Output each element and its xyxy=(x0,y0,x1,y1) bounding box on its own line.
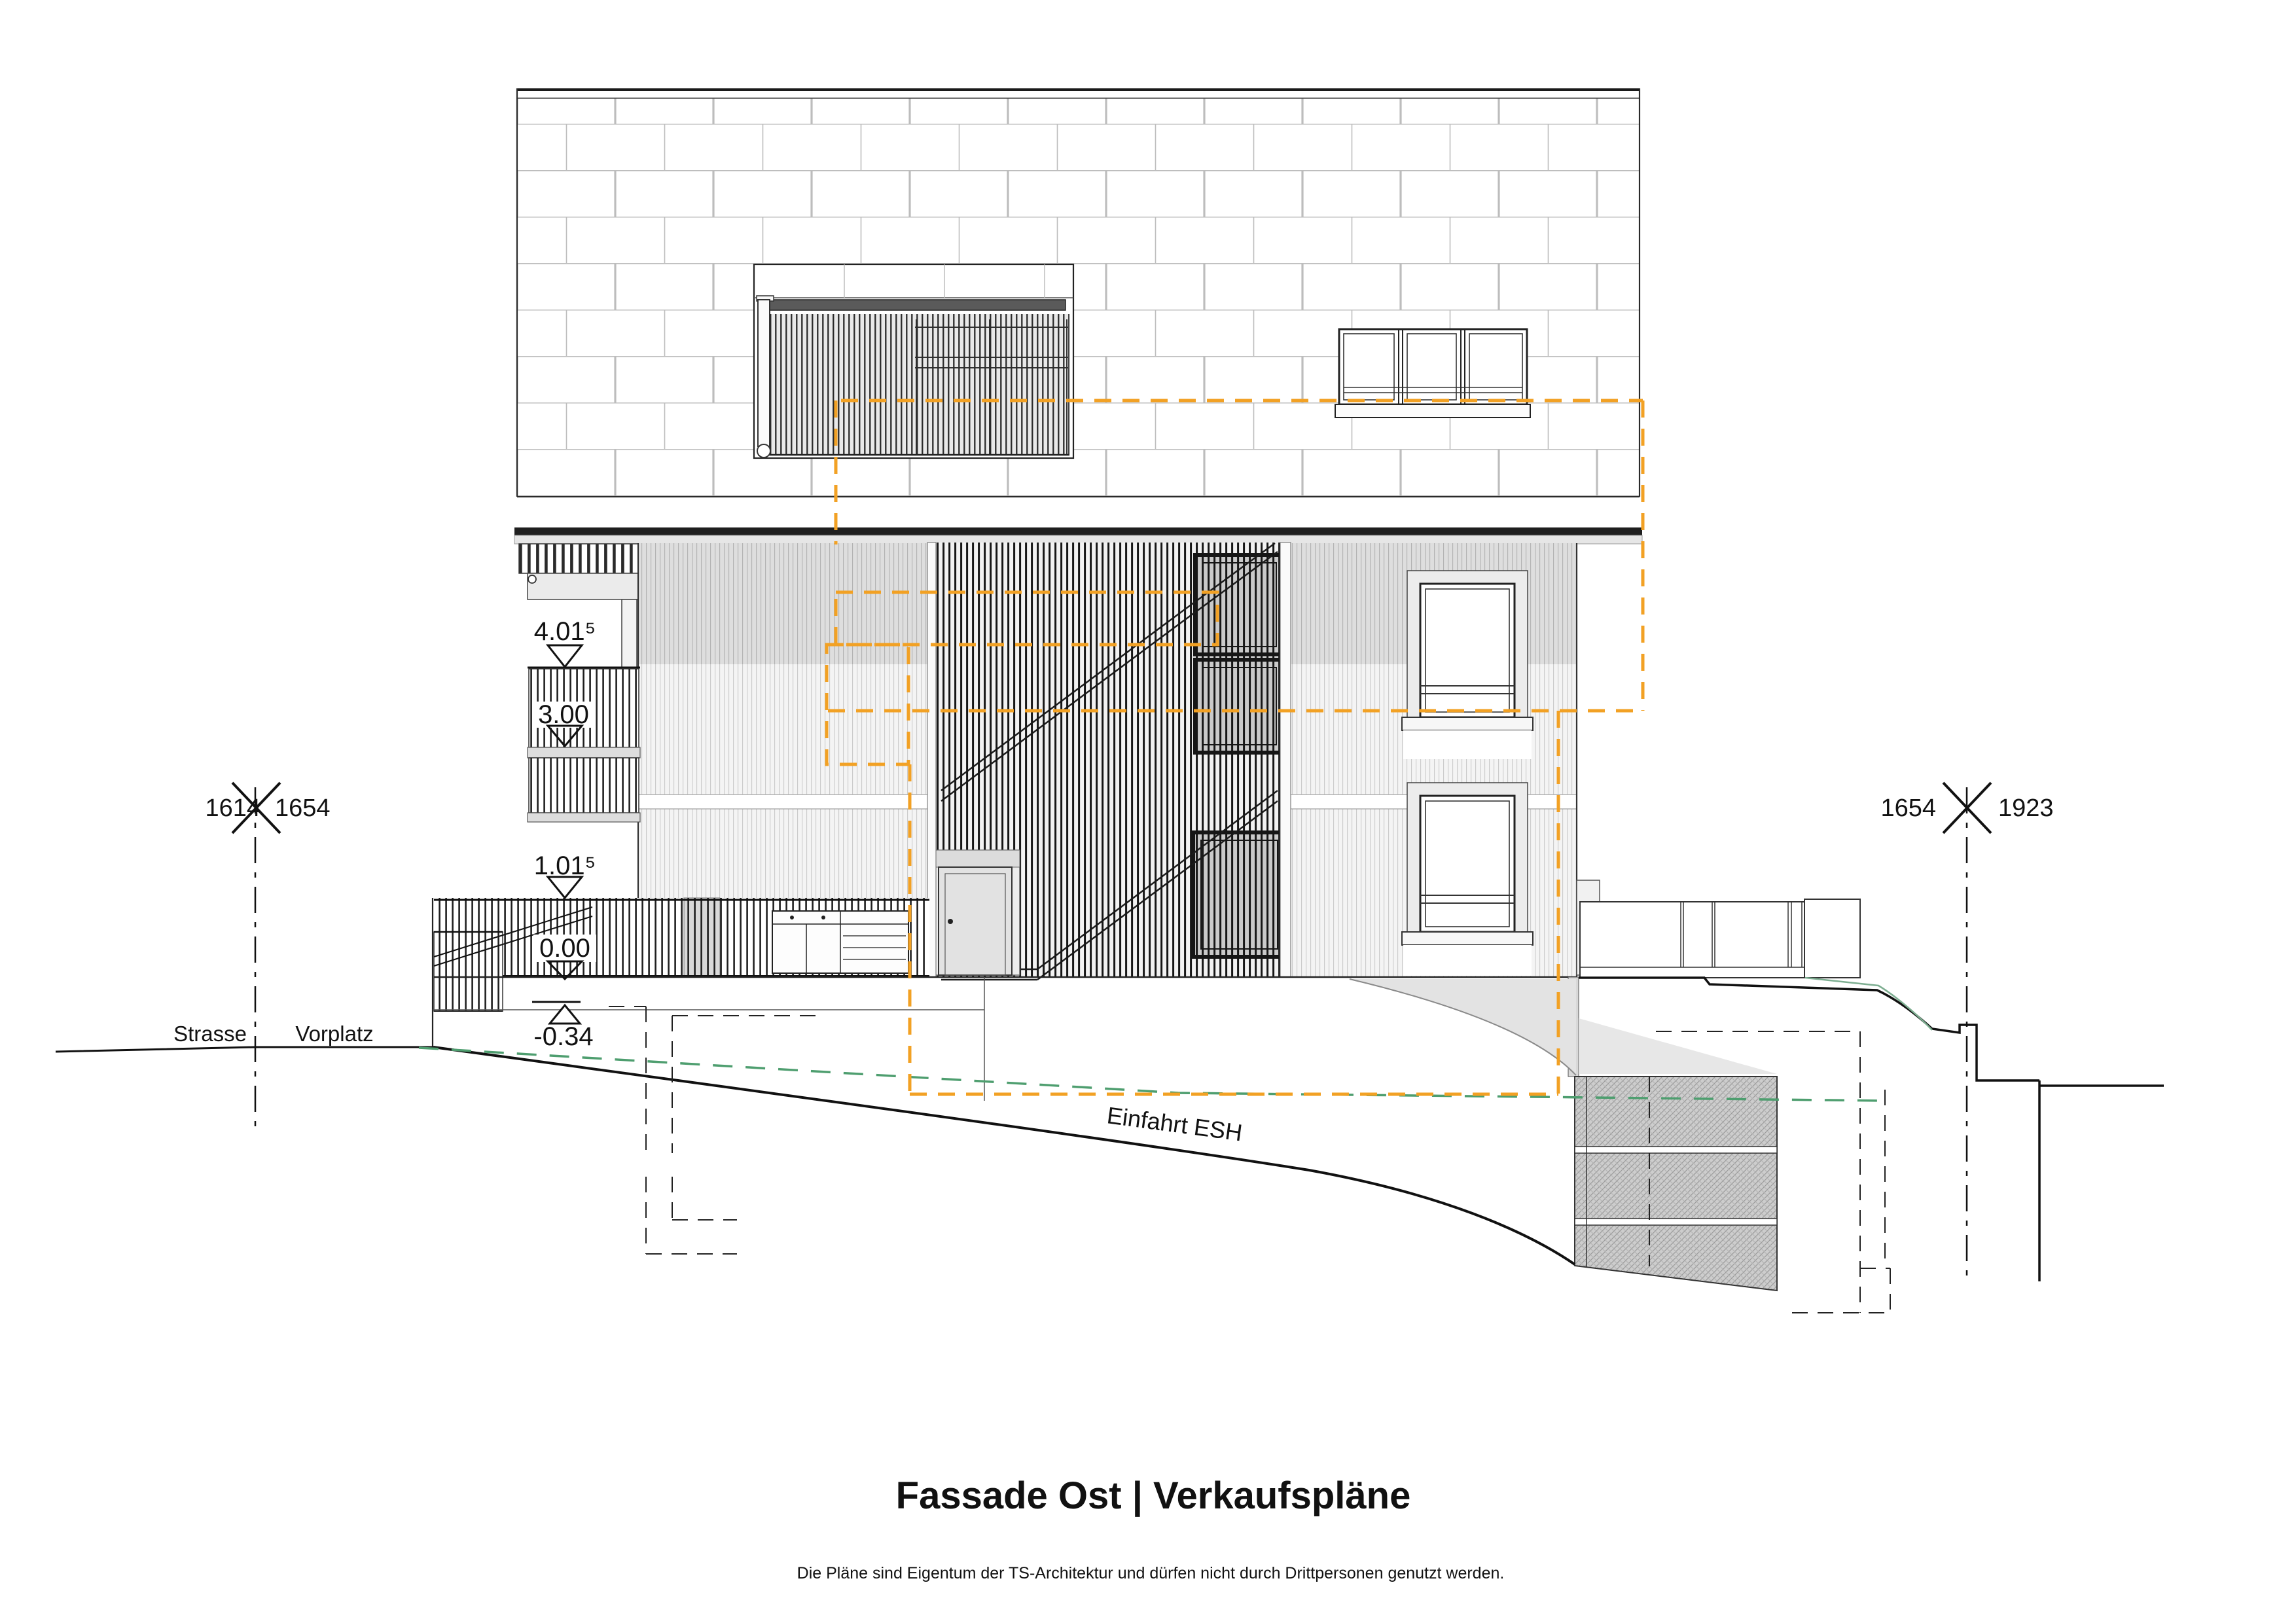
attic-window-sill xyxy=(1335,404,1530,418)
window-lower-right xyxy=(1402,783,1533,976)
roof-attic-storey xyxy=(517,88,1640,497)
mailbox-unit xyxy=(772,911,908,973)
level-arrow-attic-top xyxy=(548,645,582,667)
pergola-right-box xyxy=(1804,899,1860,978)
wall-joint-2 xyxy=(1575,1219,1777,1225)
retaining-wall-hatched xyxy=(1575,1077,1777,1291)
window-frame xyxy=(1420,796,1515,932)
door-lintel xyxy=(931,850,1020,867)
level-label-attic-floor: 3.00 xyxy=(538,700,589,729)
balcony-slab xyxy=(528,747,640,758)
level-label-grade: -0.34 xyxy=(533,1022,593,1051)
balcony-slats-lower xyxy=(529,758,639,813)
entrance xyxy=(931,850,1020,975)
balcony-bottom-slab xyxy=(528,813,640,822)
window-apron xyxy=(1403,945,1532,976)
downpipe-shoe xyxy=(757,444,770,457)
dormer-header-bar xyxy=(762,300,1066,310)
sheet-disclaimer: Die Pläne sind Eigentum der TS-Architekt… xyxy=(797,1564,1505,1582)
window-upper-right xyxy=(1402,571,1533,759)
level-label-upper-floor: 1.01⁵ xyxy=(534,851,596,880)
garage-vault-shade xyxy=(1350,979,1576,1075)
canopy-beam xyxy=(528,573,638,599)
title-block: Fassade Ost | Verkaufspläne Die Pläne si… xyxy=(797,1474,1505,1582)
basement-outline-left-upper xyxy=(609,1007,816,1153)
window-apron xyxy=(1403,730,1532,759)
basement-outline-left-lower xyxy=(646,1177,737,1254)
ground-line-street xyxy=(56,1047,433,1052)
stair-tower xyxy=(927,543,1291,980)
window-frame xyxy=(1420,584,1515,717)
attic-window-triple xyxy=(1335,329,1530,418)
door-handle xyxy=(948,919,953,924)
eaves-fascia-dark xyxy=(514,527,1642,535)
elevation-drawing: 1614 1654 1654 1923 4.01⁵ 3.00 1.01⁵ 0.0… xyxy=(0,0,2296,1623)
parcel-number: 1654 xyxy=(1880,794,1936,822)
terrain-finish-green xyxy=(1805,978,1932,1030)
stair-tower-edge-right xyxy=(1280,543,1291,977)
mailbox-lock-1 xyxy=(790,916,794,919)
dormer-slats xyxy=(758,314,1069,455)
canopy-post xyxy=(622,599,637,669)
eaves xyxy=(514,527,1642,544)
garage-outline-right-lower xyxy=(1792,1090,1890,1313)
roof-tile-grid xyxy=(517,98,1640,497)
street-label: Strasse xyxy=(173,1022,247,1046)
boundary-left: 1614 1654 xyxy=(205,783,330,1127)
window-sill xyxy=(1402,932,1533,945)
balcony-upper-left xyxy=(528,668,640,822)
mailbox-lock-2 xyxy=(821,916,825,919)
forecourt-label: Vorplatz xyxy=(295,1022,373,1046)
garden-pergola xyxy=(1580,899,1860,978)
parcel-number: 1614 xyxy=(205,794,260,822)
attic-dormer-loggia xyxy=(754,264,1073,458)
parcel-number: 1654 xyxy=(275,794,331,822)
level-arrow-grade xyxy=(550,1005,580,1024)
wall-joint-1 xyxy=(1575,1147,1777,1153)
plan-sheet: 1614 1654 1654 1923 4.01⁵ 3.00 1.01⁵ 0.0… xyxy=(0,0,2296,1623)
driveway-ground-line xyxy=(433,1047,1575,1264)
level-label-attic-top: 4.01⁵ xyxy=(534,617,596,646)
level-label-entry: 0.00 xyxy=(539,934,590,963)
downpipe xyxy=(758,300,770,446)
window-sill xyxy=(1402,717,1533,730)
level-arrow-upper-floor xyxy=(548,877,582,898)
driveway-label: Einfahrt ESH xyxy=(1105,1101,1244,1146)
entry-stair-railing-slats xyxy=(434,932,503,1011)
soffit-battens xyxy=(519,544,638,573)
vault-shade-right xyxy=(1579,1018,1777,1074)
sheet-title: Fassade Ost | Verkaufspläne xyxy=(896,1474,1411,1517)
gutter-outlet xyxy=(528,575,536,583)
parcel-number: 1923 xyxy=(1998,794,2054,822)
boundary-right: 1654 1923 xyxy=(1880,783,2053,1277)
